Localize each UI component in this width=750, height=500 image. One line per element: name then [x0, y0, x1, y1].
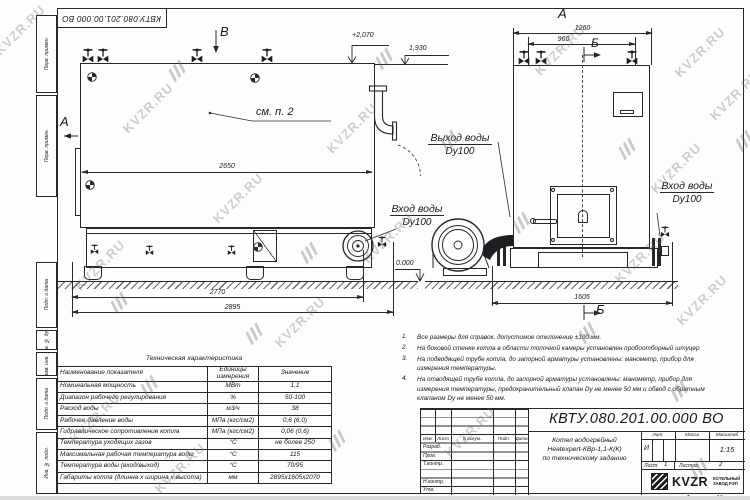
rev-header-izm: Изм. [421, 436, 435, 441]
tech-cell-name: Расход воды [58, 404, 208, 415]
tech-cell-value: не более 250 [259, 438, 332, 449]
tech-cell-units: мм [208, 472, 259, 483]
tech-table-row: Рабочее давление водыМПа (кгс/см2)0,6 (6… [58, 415, 332, 426]
door-bolt-icon [551, 188, 555, 192]
view-label-a-top-right: А [558, 6, 567, 21]
inlet-water-label-bottom: Вход воды Dy100 [381, 199, 453, 228]
side-base-access-box [253, 230, 277, 262]
grid-line [652, 439, 653, 461]
dim-1605 [492, 303, 672, 304]
tech-table-row: Расход водым3/ч38 [58, 404, 332, 415]
top-rotated-stamp: КВТУ.080.201.00.000 ВО [57, 8, 167, 28]
scale-header: Масштаб [709, 433, 745, 438]
ground-hatch-right [425, 281, 678, 289]
skid-foot-right [346, 266, 364, 280]
sheet-label: Лист [644, 463, 657, 469]
note-item: 4.На отводящей трубе котла, до запорной … [402, 375, 744, 403]
tech-cell-value: 1,1 [259, 381, 332, 392]
left-nozzle-flange [497, 238, 500, 266]
sign-row-razrab: Разраб. [423, 444, 441, 450]
tech-cell-name: Рабочее давление воды [58, 415, 208, 426]
dim-2895 [72, 312, 393, 313]
dim-960 [528, 44, 635, 45]
tech-cell-units: °С [208, 438, 259, 449]
rev-header-data: Дата [515, 436, 528, 441]
dim-2895-label: 2895 [72, 304, 393, 311]
tech-cell-units: % [208, 393, 259, 404]
tech-table-row: Диапазон рабочего регулирования%50-100 [58, 393, 332, 404]
mass-header: Масса [675, 433, 709, 438]
sign-row-utv: Утв. [423, 487, 434, 493]
note-text: На подводящей трубе котла, до запорной а… [417, 355, 725, 374]
frame-cell-podp-data-2: Подп. и дата [36, 378, 57, 430]
grid-line [641, 439, 745, 440]
tech-cell-units: м3/ч [208, 404, 259, 415]
left-nozzle-flange [503, 238, 506, 266]
extension-line [393, 242, 394, 316]
note-text: Все размеры для справок, допустимое откл… [417, 333, 725, 342]
kvzr-logo-icon [651, 473, 668, 490]
note-number: 3. [402, 355, 417, 374]
view-label-b-top: В [220, 24, 229, 39]
door-bolt-icon [610, 188, 614, 192]
right-nozzle-flange [652, 238, 655, 266]
tech-cell-name: Диапазон рабочего регулирования [58, 393, 208, 404]
rev-header-dokum: N докум. [451, 436, 493, 441]
tech-cell-value: 0,06 (0,6) [259, 427, 332, 438]
grid-line [493, 409, 494, 495]
tech-cell-value: 115 [259, 449, 332, 460]
tech-cell-value: 2895х1605х2070 [259, 472, 332, 483]
grid-line [515, 409, 516, 495]
tech-cell-value: 50-100 [259, 393, 332, 404]
see-note-callout: см. п. 2 [256, 106, 293, 118]
sheets-label: Листов [679, 463, 698, 469]
dim-1260-label: 1260 [513, 25, 652, 32]
tech-table-header-row: Наименование показателя Единицы измерени… [58, 367, 332, 382]
skid-foot-middle [246, 266, 264, 280]
frame-cell-inv-podl: Инв. № подл. [36, 432, 57, 494]
document-designation: КВТУ.080.201.00.000 ВО [528, 411, 745, 427]
note-text: На отводящей трубе котла, до запорной ар… [417, 375, 725, 403]
elevation-zero-label: 0.000 [396, 260, 414, 267]
sheet-value: 1 [664, 462, 667, 468]
grid-line [641, 469, 745, 470]
note-number: 4. [402, 375, 417, 403]
tech-table-row: Максимальная рабочая температура воды°С1… [58, 449, 332, 460]
tech-col-units: Единицы измерения [208, 367, 259, 382]
view-label-a-left: А [60, 114, 69, 129]
tech-cell-name: Температура воды (вход/выход) [58, 461, 208, 472]
dim-2650 [82, 172, 372, 173]
control-panel-slot [620, 110, 634, 114]
rear-ledge-line [375, 64, 448, 65]
frame-cell-podp-data-1: Подп. и дата [36, 262, 57, 328]
dim-1260 [513, 33, 652, 34]
note-item: 1.Все размеры для справок, допустимое от… [402, 333, 744, 342]
side-base-topline [86, 233, 372, 234]
dim-960-label: 960 [510, 36, 617, 43]
grid-line [674, 461, 675, 469]
lit-value: И [641, 445, 652, 452]
dim-2650-label: 2650 [82, 163, 372, 170]
front-base-inner [538, 252, 628, 268]
page-edge [0, 496, 750, 500]
dim-2770 [72, 297, 363, 298]
tech-cell-name: Номинальная мощность [58, 381, 208, 392]
tech-table-row: Номинальная мощностьМВт1,1 [58, 381, 332, 392]
tech-table-title: Техническая характеристика [57, 355, 331, 362]
tech-table-body: Номинальная мощностьМВт1,1Диапазон рабоч… [58, 381, 332, 484]
frame-cell-perv-primen-1: Перв. примен. [36, 15, 57, 93]
sheets-value: 2 [719, 462, 722, 468]
dim-2770-label: 2770 [72, 289, 363, 296]
title-block: КВТУ.080.201.00.000 ВО Изм. Лист N докум… [420, 408, 744, 494]
tech-cell-value: 38 [259, 404, 332, 415]
note-text: На боковой стенке котла в области топочн… [417, 344, 725, 353]
revision-grid-lines [421, 409, 528, 434]
side-base-skid [86, 228, 372, 268]
elevation-ledge-label: 1,930 [409, 45, 427, 52]
tech-cell-name: Температура уходящих газов [58, 438, 208, 449]
tech-cell-units: МПа (кгс/см2) [208, 427, 259, 438]
tech-cell-value: 70/95 [259, 461, 332, 472]
grid-line [641, 431, 642, 495]
tech-col-value: Значение [259, 367, 332, 382]
sign-row-tkontr: Т.контр. [423, 461, 443, 467]
inlet-water-label-right: Вход воды Dy100 [651, 176, 723, 205]
notes-list: 1.Все размеры для справок, допустимое от… [402, 333, 744, 405]
sign-row-nkontr: Н.контр. [423, 479, 444, 485]
frame-cell-vzam-inv: Взам. инв. № [36, 352, 57, 376]
kvzr-logo-text: KVZR [672, 475, 708, 489]
section-label-b-top: Б [591, 36, 599, 50]
drawing-sheet: Перв. примен. Перв. примен. Подп. и дата… [0, 0, 750, 500]
fan-base-plate [443, 268, 487, 276]
tech-cell-name: Максимальная рабочая температура воды [58, 449, 208, 460]
door-handle [533, 219, 557, 224]
rev-header-list: Лист [435, 436, 451, 441]
scale-value: 1:15 [709, 445, 745, 454]
company-name: КОТЕЛЬНЫЙ ЗАВОД РЭП [713, 476, 740, 487]
door-latch [578, 210, 588, 223]
door-bolt-icon [551, 238, 555, 242]
frame-cell-inv-dubl: Инв. № дубл. [36, 330, 57, 350]
boiler-side-body [80, 63, 375, 228]
skid-foot-left [84, 266, 102, 280]
tech-cell-units: МВт [208, 381, 259, 392]
tech-cell-units: °С [208, 449, 259, 460]
elevation-top-label: +2,070 [352, 32, 374, 39]
tech-table: Наименование показателя Единицы измерени… [57, 366, 332, 484]
tech-cell-units: °С [208, 461, 259, 472]
tech-cell-name: Габариты котла (длинна х ширина х высота… [58, 472, 208, 483]
note-item: 3.На подводящей трубе котла, до запорной… [402, 355, 744, 374]
tech-cell-value: 0,6 (6,0) [259, 415, 332, 426]
document-name: Котел водогрейный Heatexpert-КВр-1,1-К(К… [528, 436, 641, 463]
grid-line [663, 439, 664, 461]
lit-header: Лит. [641, 433, 675, 438]
grid-line [451, 409, 452, 495]
tech-col-name: Наименование показателя [58, 367, 208, 382]
note-item: 2.На боковой стенке котла в области топо… [402, 344, 744, 353]
note-number: 1. [402, 333, 417, 342]
tech-table-row: Температура воды (вход/выход)°С70/95 [58, 461, 332, 472]
tech-table-row: Габариты котла (длинна х ширина х высота… [58, 472, 332, 483]
tech-cell-name: Гидравлическое сопротивление котла [58, 427, 208, 438]
door-handle-knob [530, 218, 536, 224]
right-nozzle-stub [661, 246, 669, 256]
sign-row-prov: Пров. [423, 453, 436, 459]
section-label-b-bottom: Б [596, 302, 604, 317]
frame-cell-perv-primen-2: Перв. примен. [36, 95, 57, 197]
door-bolt-icon [610, 238, 614, 242]
tech-cell-units: МПа (кгс/см2) [208, 415, 259, 426]
tech-table-row: Гидравлическое сопротивление котлаМПа (к… [58, 427, 332, 438]
rev-header-podp: Подп. [493, 436, 515, 441]
note-number: 2. [402, 344, 417, 353]
tech-table-row: Температура уходящих газов°Сне более 250 [58, 438, 332, 449]
outlet-water-label: Выход воды Dy100 [419, 128, 501, 157]
dim-1605-label: 1605 [492, 294, 672, 301]
side-left-channel [75, 148, 81, 216]
